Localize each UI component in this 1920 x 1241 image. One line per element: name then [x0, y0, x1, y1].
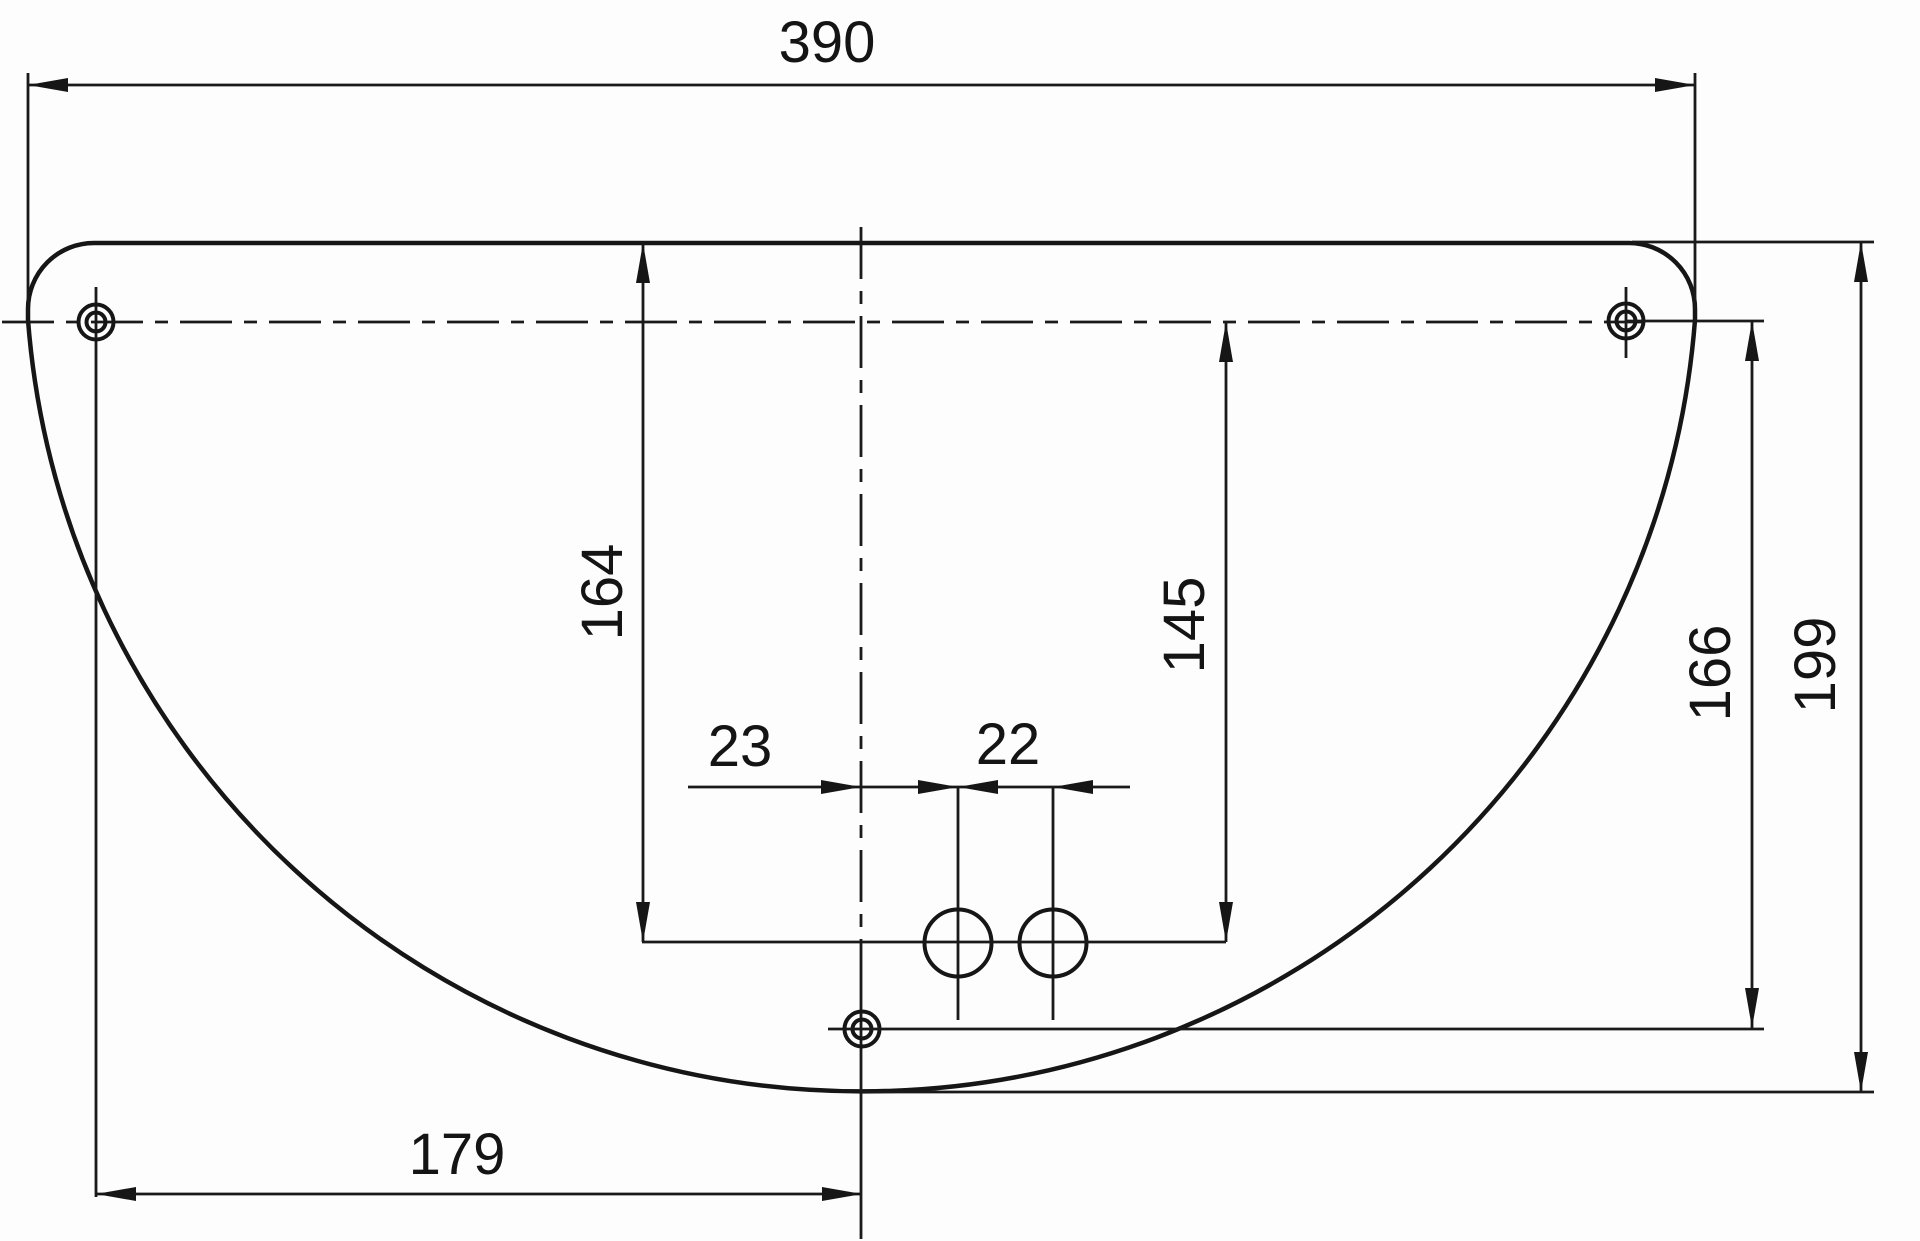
dim-23-label: 23: [708, 714, 773, 779]
arrowhead-22-right: [1053, 780, 1093, 794]
arrowhead-up: [1854, 242, 1868, 282]
arrowhead-down: [1219, 902, 1233, 942]
arrowhead-23-right: [958, 780, 998, 794]
technical-drawing-canvas: 390 164 145 23 22 166: [0, 0, 1920, 1241]
arrowhead-right: [822, 1187, 862, 1201]
dim-holeline-to-small: 145: [1152, 322, 1233, 942]
arrowhead-22-left: [918, 780, 958, 794]
arrowhead-down: [636, 902, 650, 942]
arrowhead-at-centerline: [821, 780, 861, 794]
dim-145-label: 145: [1152, 577, 1217, 674]
dim-179-label: 179: [409, 1122, 506, 1187]
arrowhead-up: [1219, 322, 1233, 362]
arrowhead-right: [1655, 78, 1695, 92]
arrowhead-left: [96, 1187, 136, 1201]
arrowhead-up: [1745, 321, 1759, 361]
dim-left-hole-to-center: 179: [96, 1122, 862, 1201]
arrowhead-left: [28, 78, 68, 92]
arrowhead-down: [1854, 1052, 1868, 1092]
dim-holeline-to-bottom-hole: 166: [828, 321, 1764, 1029]
dim-top-to-small-holes: 164: [570, 243, 650, 942]
dim-199-label: 199: [1783, 617, 1848, 714]
dim-22-label: 22: [976, 712, 1041, 777]
arrowhead-down: [1745, 988, 1759, 1028]
dim-164-label: 164: [570, 544, 635, 641]
dim-overall-width-label: 390: [779, 10, 876, 75]
arrowhead-up: [636, 243, 650, 283]
center-lines: [2, 227, 1642, 1239]
drawing-page: 390 164 145 23 22 166: [0, 0, 1920, 1241]
dim-small-hole-offsets: 23 22: [688, 712, 1130, 794]
dim-166-label: 166: [1678, 625, 1743, 722]
